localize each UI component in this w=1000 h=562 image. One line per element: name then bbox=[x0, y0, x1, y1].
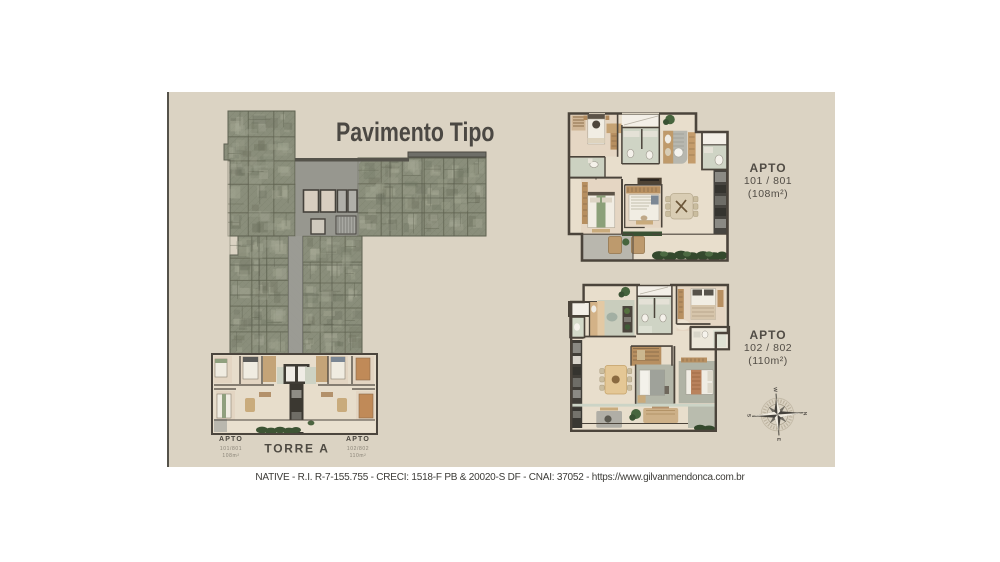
svg-text:E: E bbox=[775, 438, 781, 442]
svg-text:N: N bbox=[801, 412, 807, 416]
svg-text:APTO: APTO bbox=[219, 436, 243, 443]
svg-text:108m²: 108m² bbox=[222, 453, 239, 459]
svg-text:TORRE A: TORRE A bbox=[264, 442, 329, 456]
svg-text:101/801: 101/801 bbox=[220, 446, 242, 452]
svg-text:110m²: 110m² bbox=[350, 453, 367, 459]
svg-text:S: S bbox=[745, 414, 751, 418]
svg-text:W: W bbox=[772, 387, 778, 392]
svg-text:102/802: 102/802 bbox=[347, 446, 369, 452]
svg-text:APTO: APTO bbox=[346, 436, 370, 443]
